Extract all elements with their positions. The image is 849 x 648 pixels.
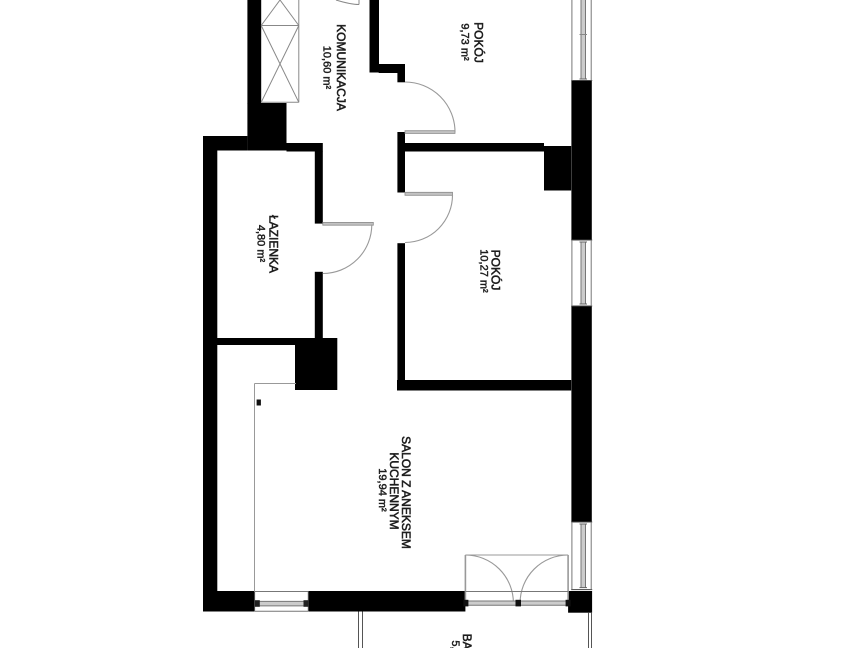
svg-text:KUCHENNYM: KUCHENNYM — [387, 452, 401, 529]
svg-text:4,80 m²: 4,80 m² — [255, 225, 267, 263]
svg-text:10,27 m²: 10,27 m² — [478, 249, 490, 293]
svg-text:BALKON: BALKON — [460, 634, 474, 648]
svg-text:9,73 m²: 9,73 m² — [459, 23, 471, 61]
svg-text:5,30 m²: 5,30 m² — [449, 640, 461, 648]
svg-text:POKÓJ: POKÓJ — [472, 22, 487, 63]
svg-text:POKÓJ: POKÓJ — [489, 250, 504, 291]
svg-text:19,94 m²: 19,94 m² — [376, 468, 388, 512]
svg-text:KOMUNIKACJA: KOMUNIKACJA — [334, 24, 348, 111]
svg-text:10,60 m²: 10,60 m² — [321, 46, 333, 90]
svg-text:ŁAZIENKA: ŁAZIENKA — [267, 215, 281, 273]
